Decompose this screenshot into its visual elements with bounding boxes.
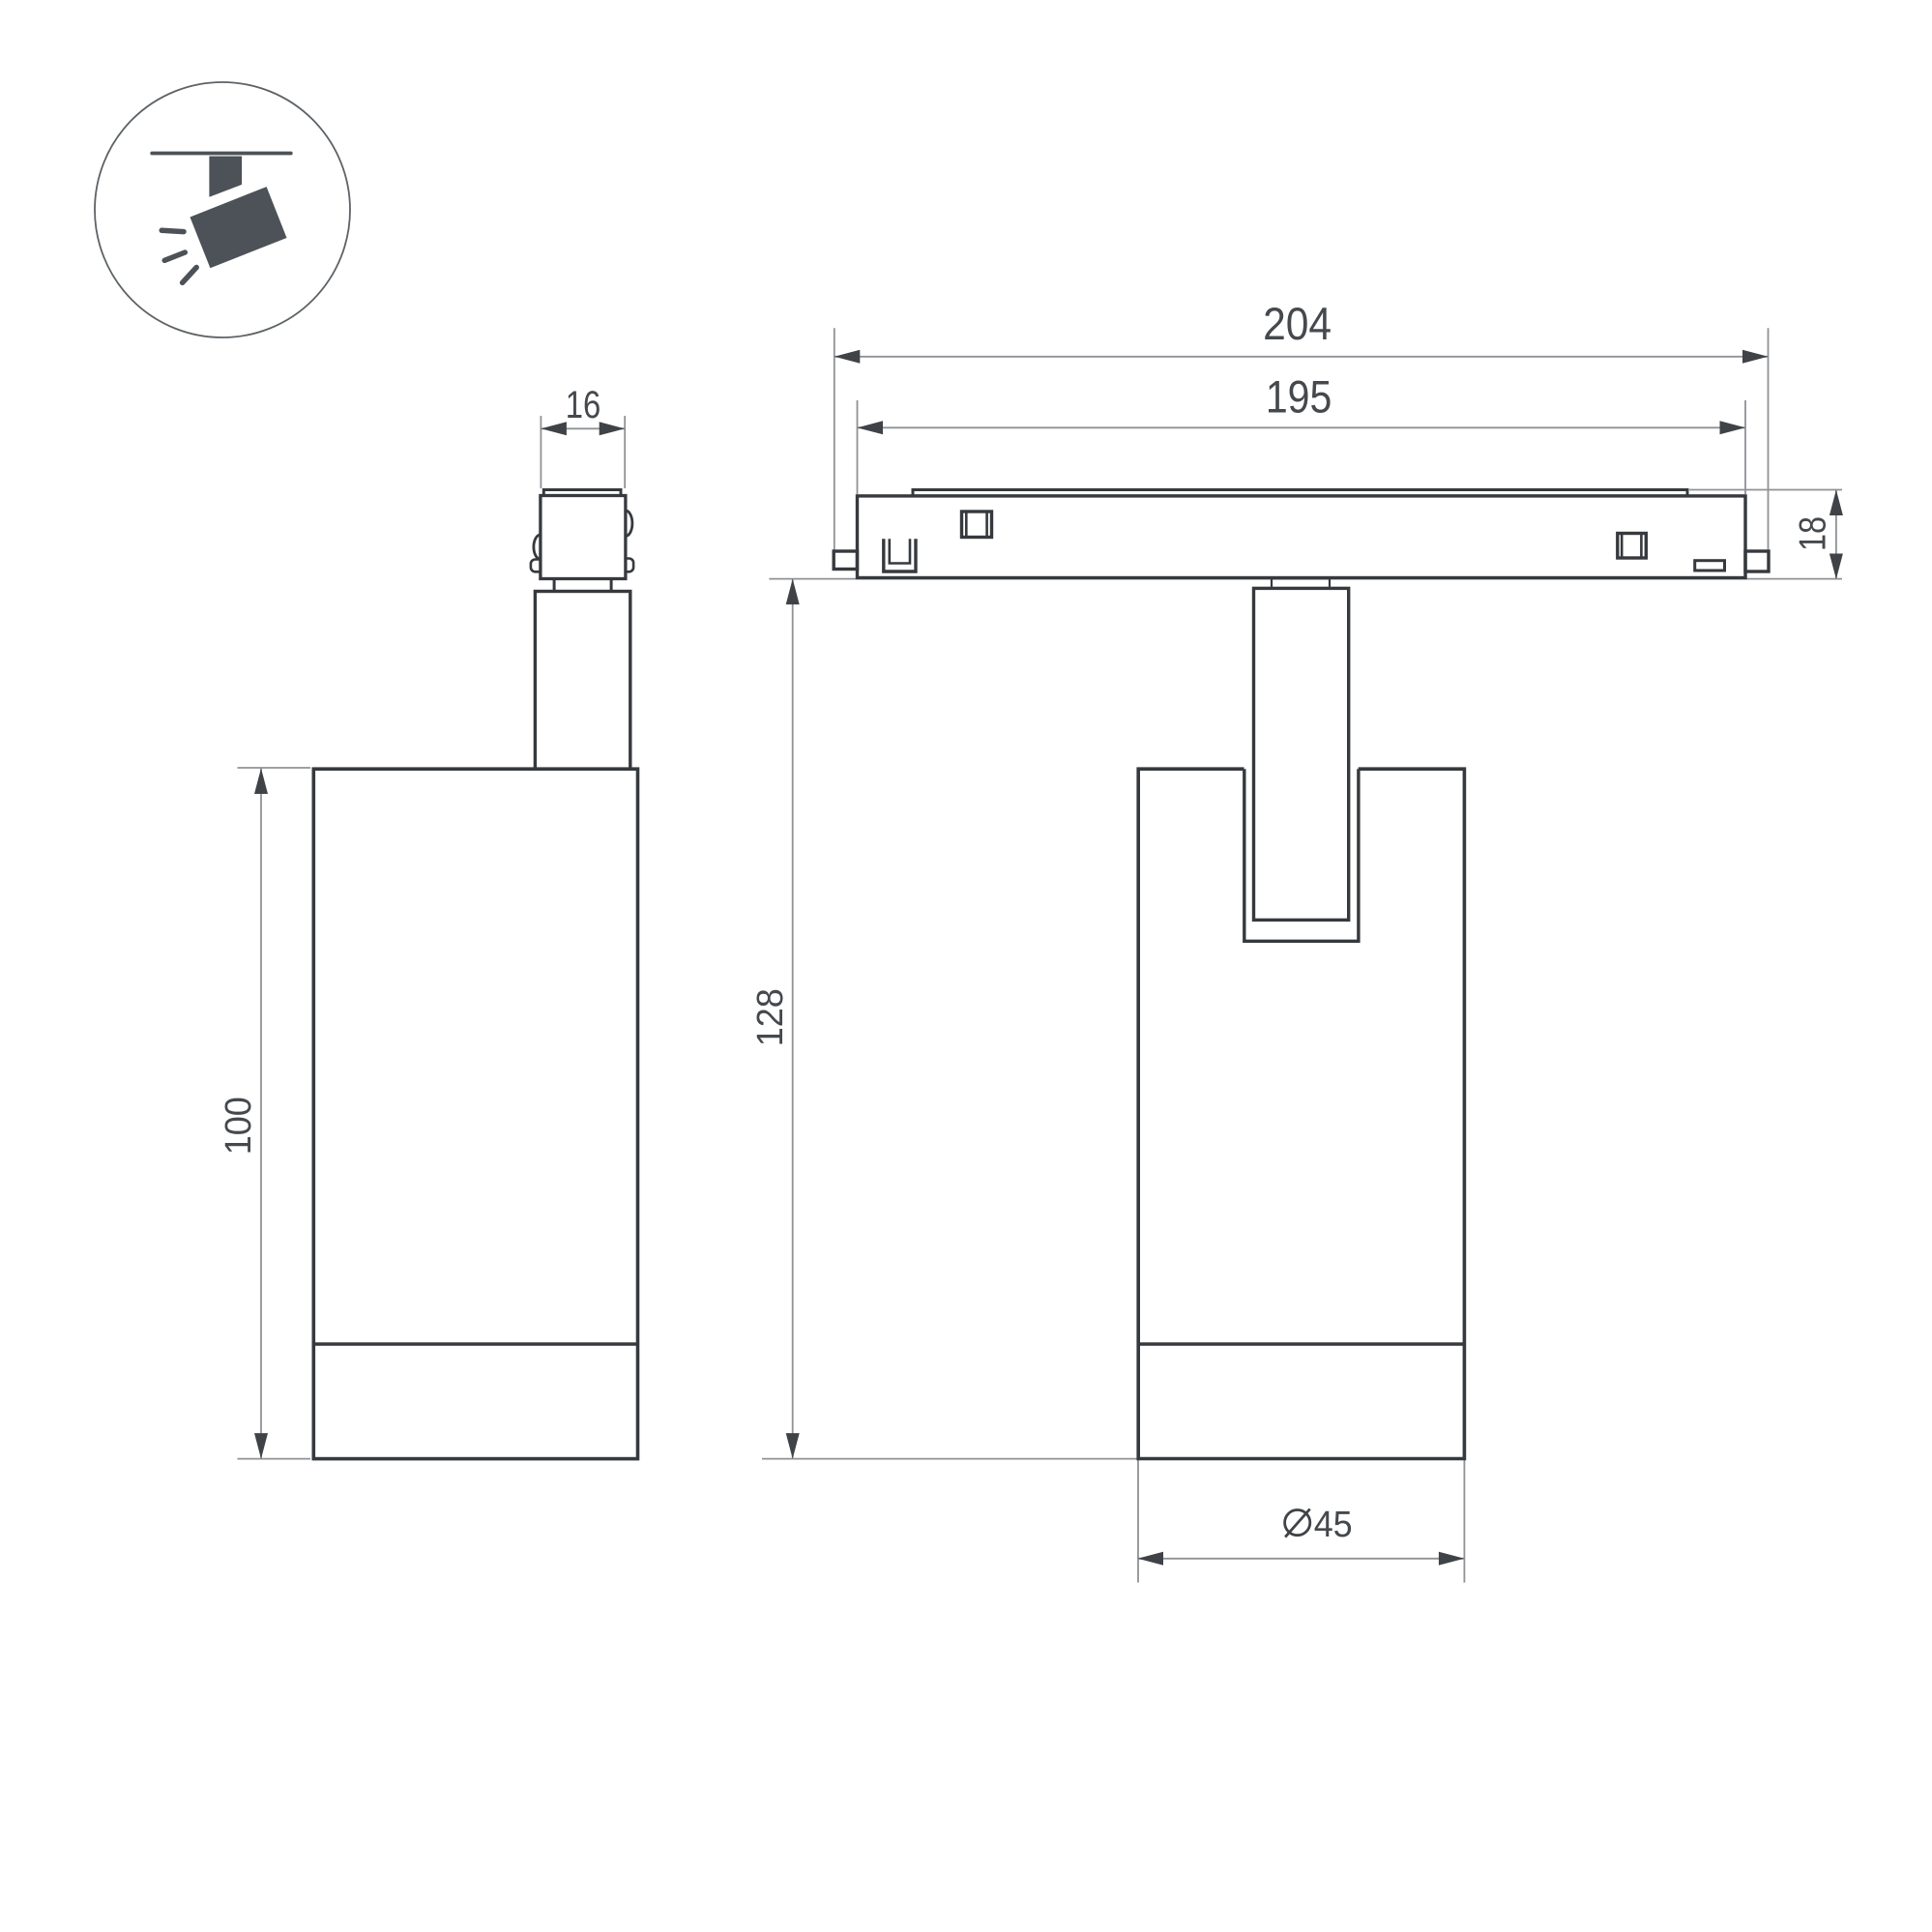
svg-text:100: 100 <box>219 1097 259 1155</box>
svg-text:195: 195 <box>1266 372 1332 424</box>
svg-text:18: 18 <box>1793 516 1834 551</box>
svg-text:16: 16 <box>566 384 601 426</box>
svg-text:128: 128 <box>750 988 791 1046</box>
svg-text:204: 204 <box>1263 299 1332 350</box>
svg-text:45: 45 <box>1314 1505 1353 1545</box>
